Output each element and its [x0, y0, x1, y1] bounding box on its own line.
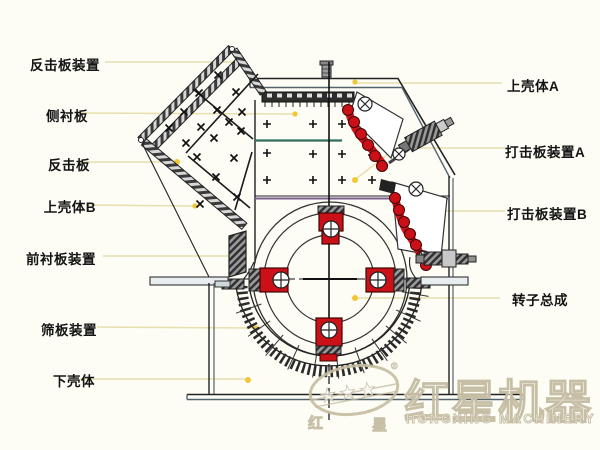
striking-plate-device-a: [343, 92, 457, 172]
label-impact-plate: 反击板: [48, 154, 90, 174]
feed-chute-panel: [138, 46, 266, 285]
adjusting-bolt-assembly: [416, 250, 476, 267]
label-striking-plate-device-a: 打击板装置A: [505, 141, 585, 161]
label-impact-plate-device: 反击板装置: [30, 54, 100, 74]
impact-curtain-bar: [262, 92, 354, 107]
blow-bar-right: [366, 268, 404, 292]
crusher-structure-figure: ★★★ ® 红星机器 HONGXING MACHINERY 红 星 反击板装置 …: [0, 0, 600, 450]
logo-stars-icon: ★★★: [318, 379, 380, 408]
blow-bar-bottom: [316, 318, 342, 361]
label-front-liner-device: 前衬板装置: [26, 248, 96, 268]
top-bolt-stub: [320, 61, 333, 77]
front-liner-plate: [229, 231, 246, 277]
watermark-brand-en: HONGXING MACHINERY: [406, 412, 596, 426]
label-side-liner: 侧衬板: [46, 105, 88, 125]
striking-plate-device-b: [379, 179, 476, 271]
label-rotor-assembly: 转子总成: [512, 289, 568, 309]
label-lower-shell: 下壳体: [53, 370, 95, 390]
label-screen-plate-device: 筛板装置: [41, 319, 97, 339]
label-upper-shell-b: 上壳体B: [44, 196, 96, 216]
registered-mark: ®: [391, 361, 398, 371]
label-striking-plate-device-b: 打击板装置B: [507, 203, 587, 223]
watermark-stamp-left: 红: [308, 412, 323, 433]
watermark-stamp-right: 星: [372, 414, 387, 435]
blow-bar-left: [249, 268, 289, 292]
label-upper-shell-a: 上壳体A: [507, 75, 559, 95]
blow-bar-top: [318, 206, 344, 244]
